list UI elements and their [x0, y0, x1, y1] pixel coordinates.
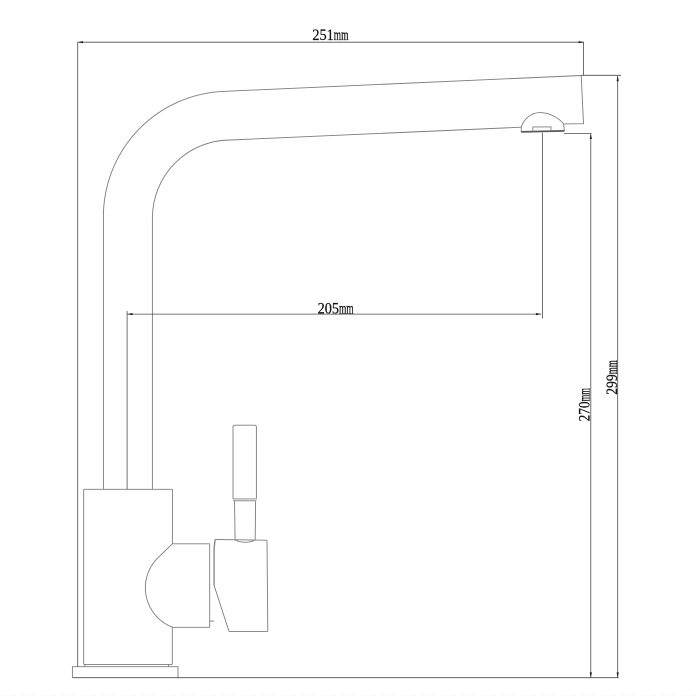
svg-text:270mm: 270mm: [576, 388, 593, 421]
svg-text:205mm: 205mm: [318, 300, 354, 317]
svg-text:251mm: 251mm: [312, 27, 348, 44]
svg-text:299mm: 299mm: [604, 360, 621, 395]
